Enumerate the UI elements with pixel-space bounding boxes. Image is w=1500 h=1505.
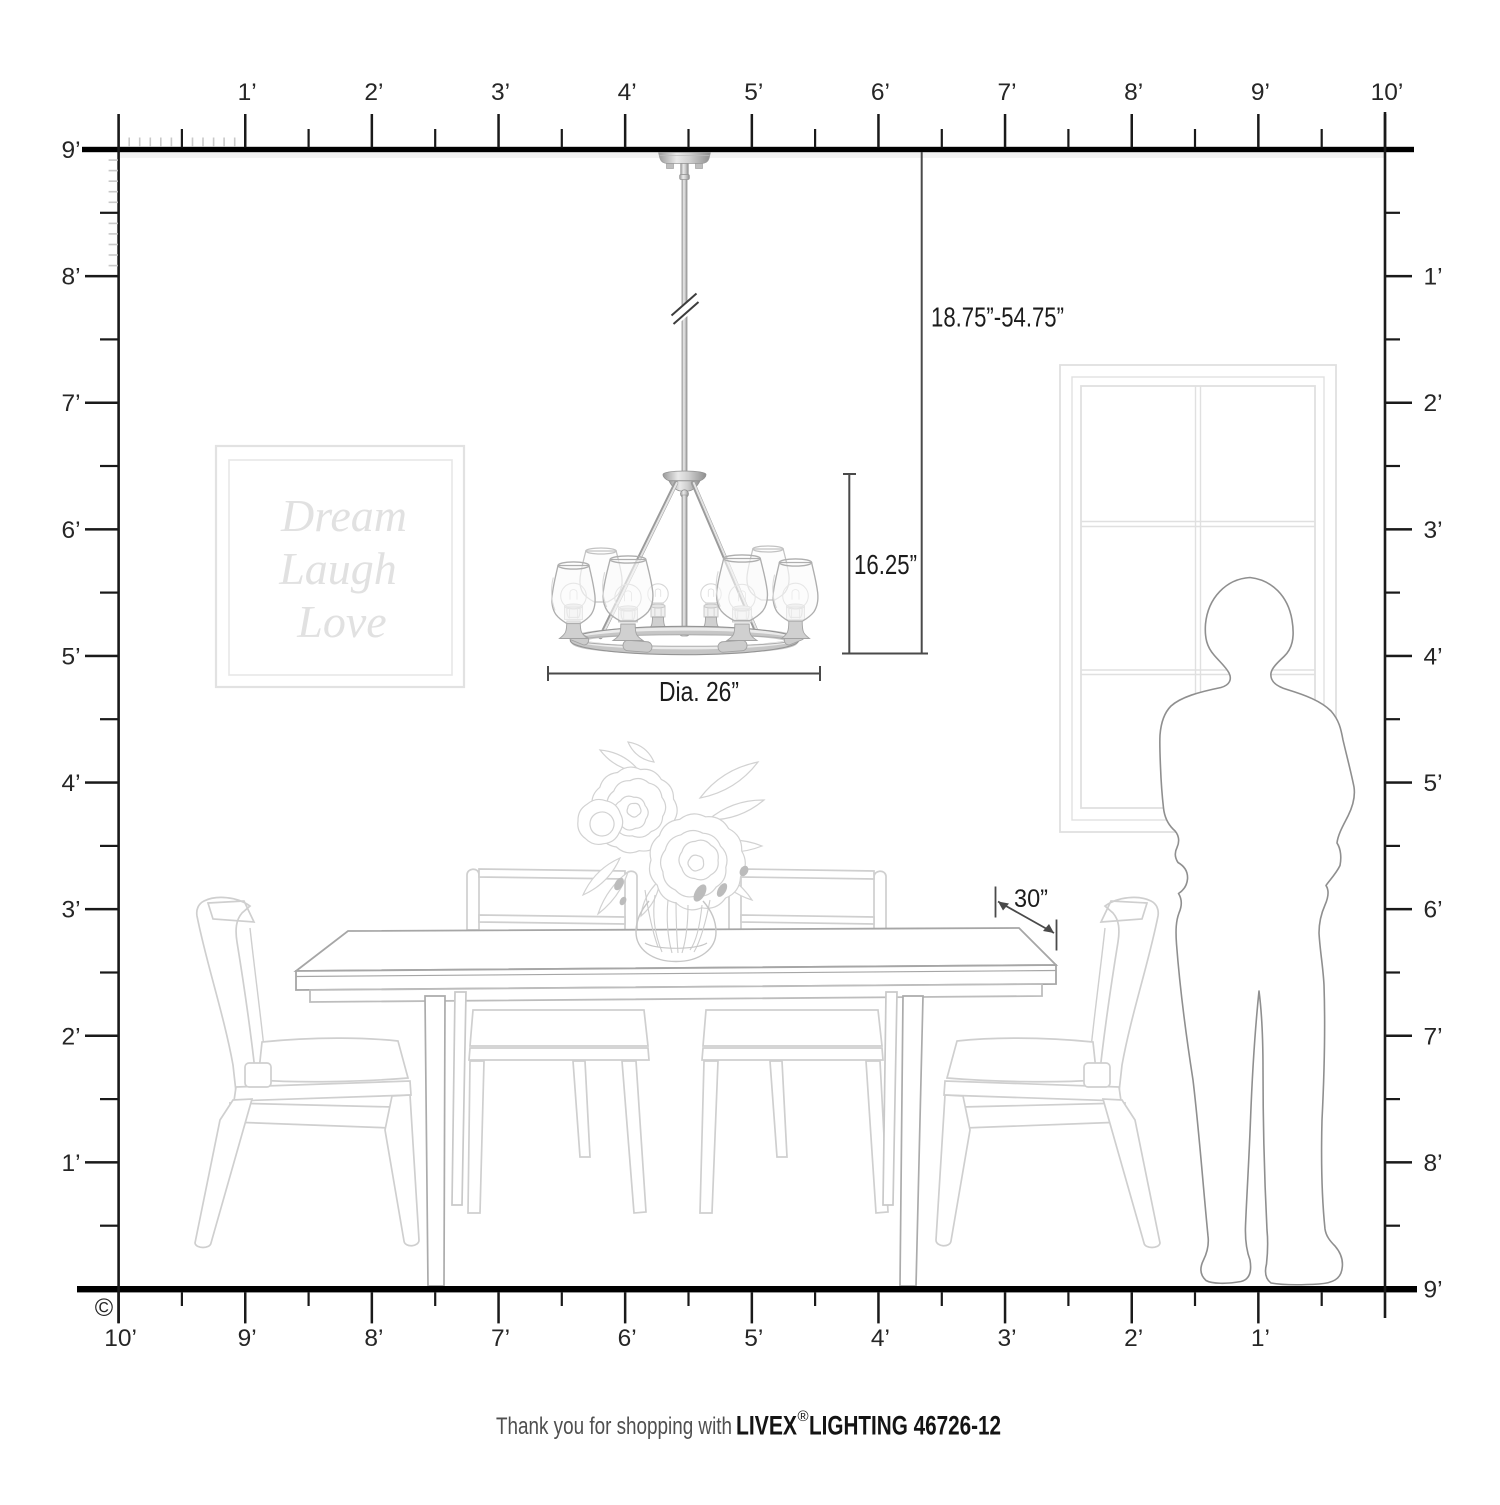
svg-text:4’: 4’ [61, 770, 80, 797]
svg-text:9’: 9’ [238, 1325, 257, 1352]
svg-text:6’: 6’ [1423, 897, 1442, 924]
svg-text:5’: 5’ [744, 1325, 763, 1352]
svg-text:LIGHTING 46726-12: LIGHTING 46726-12 [809, 1411, 1001, 1441]
svg-text:4’: 4’ [871, 1325, 890, 1352]
svg-text:4’: 4’ [1423, 643, 1442, 670]
svg-text:8’: 8’ [1423, 1150, 1442, 1177]
svg-text:6’: 6’ [618, 1325, 637, 1352]
svg-text:10’: 10’ [104, 1325, 137, 1352]
svg-text:8’: 8’ [364, 1325, 383, 1352]
svg-text:18.75”-54.75”: 18.75”-54.75” [931, 302, 1064, 333]
svg-text:5’: 5’ [61, 643, 80, 670]
svg-text:30”: 30” [1014, 885, 1048, 913]
svg-text:1’: 1’ [1423, 264, 1442, 291]
svg-text:5’: 5’ [744, 79, 763, 106]
svg-text:8’: 8’ [1124, 79, 1143, 106]
svg-text:7’: 7’ [491, 1325, 510, 1352]
svg-text:LIVEX: LIVEX [736, 1411, 797, 1441]
svg-text:2’: 2’ [1124, 1325, 1143, 1352]
svg-text:6’: 6’ [61, 517, 80, 544]
svg-text:9’: 9’ [1251, 79, 1270, 106]
svg-text:9’: 9’ [61, 137, 80, 164]
svg-text:7’: 7’ [998, 79, 1017, 106]
svg-text:16.25”: 16.25” [854, 549, 917, 580]
svg-text:Dia. 26”: Dia. 26” [659, 676, 739, 707]
svg-text:5’: 5’ [1423, 770, 1442, 797]
svg-text:1’: 1’ [238, 79, 257, 106]
svg-text:4’: 4’ [618, 79, 637, 106]
svg-text:3’: 3’ [61, 897, 80, 924]
svg-text:10’: 10’ [1371, 79, 1404, 106]
svg-text:2’: 2’ [364, 79, 383, 106]
svg-text:Laugh: Laugh [278, 543, 397, 594]
svg-text:1’: 1’ [61, 1150, 80, 1177]
svg-text:8’: 8’ [61, 264, 80, 291]
svg-text:©: © [95, 1294, 114, 1322]
svg-text:2’: 2’ [1423, 390, 1442, 417]
svg-text:3’: 3’ [491, 79, 510, 106]
svg-text:3’: 3’ [998, 1325, 1017, 1352]
svg-text:Dream: Dream [280, 490, 407, 541]
svg-text:®: ® [798, 1408, 809, 1425]
svg-text:6’: 6’ [871, 79, 890, 106]
svg-text:1’: 1’ [1251, 1325, 1270, 1352]
svg-text:Thank you for shopping with: Thank you for shopping with [496, 1413, 732, 1440]
svg-text:7’: 7’ [61, 390, 80, 417]
svg-text:3’: 3’ [1423, 517, 1442, 544]
svg-text:Love: Love [296, 596, 386, 647]
svg-text:7’: 7’ [1423, 1023, 1442, 1050]
svg-text:2’: 2’ [61, 1023, 80, 1050]
svg-text:9’: 9’ [1423, 1277, 1442, 1304]
